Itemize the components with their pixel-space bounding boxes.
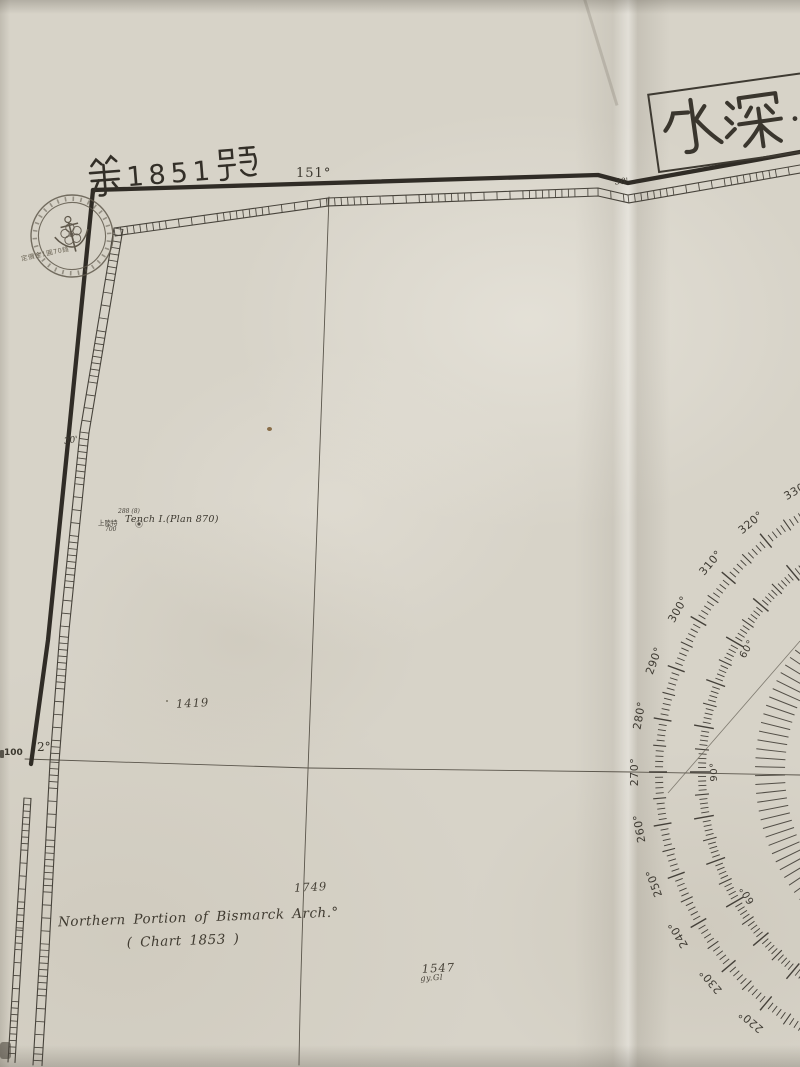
sheet-digits: 1851 [125,155,216,193]
compass-bearing-label: 290° [643,645,665,676]
compass-bearing-label: 220° [736,1007,766,1035]
compass-bearing-label: 240° [665,919,691,950]
sounding-label: 1419 [176,695,210,711]
island-figure-bottom: 700 [105,526,116,533]
cut-off-glyph [0,750,4,758]
paper-speck [267,427,272,431]
compass-bearing-label: 230° [697,966,725,996]
price-note: 定價金1圓70錢 [20,233,116,263]
ellipsis-dots [792,113,800,121]
top-minutes-label: 30' [615,177,629,188]
sounding-label: 1547gy.Gl [421,960,455,983]
compass-bearing-label: 330° [782,477,800,503]
edge-smudge [0,1042,11,1059]
region-title-line1: Northern Portion of Bismarck Arch.° [58,906,308,931]
compass-bearing-label: 90° [709,762,720,781]
kanji-sui [662,96,723,154]
depth-title-banner [647,64,800,173]
nautical-chart-photo: 220°230°240°250°260°270°280°290°300°310°… [0,0,800,1067]
compass-bearing-label: 310° [697,548,725,578]
compass-bearing-label: 60° [738,884,757,906]
paper-edge-shadow-top [0,0,800,14]
longitude-label: 151° [296,166,331,181]
paper-speck [166,700,168,702]
compass-bearing-label: 250° [643,868,665,899]
paper-crease-top-right [581,0,619,106]
compass-bearing-label: 270° [628,758,641,787]
kanji-shin [722,93,785,151]
compass-bearing-label: 300° [665,594,691,625]
compass-bearing-label: 60° [738,638,757,660]
region-title-line2: ( Chart 1853 ) [58,929,308,954]
compass-bearing-label: 320° [736,509,766,537]
island-name: Tench I.(Plan 870) [125,514,219,525]
edge-number-label: 100 [4,748,23,758]
compass-bearing-label: 260° [631,813,649,843]
kanji-dai [89,156,121,196]
bottom-quality-label: gy.Gl [420,972,456,983]
compass-bearing-label: 280° [631,700,649,730]
island-annotation: 288 (8) 上陸特 Tench I.(Plan 870) 700 [98,508,268,544]
paper-edge-shadow-left [0,0,10,1067]
sounding-label: 1749 [294,879,328,895]
kanji-gou [218,147,257,180]
paper-edge-shadow-bottom [0,1045,800,1067]
sheet-number: 1851 [84,139,277,200]
left-minutes-label: 30' [63,435,78,447]
latitude-label: 2° [37,740,51,754]
